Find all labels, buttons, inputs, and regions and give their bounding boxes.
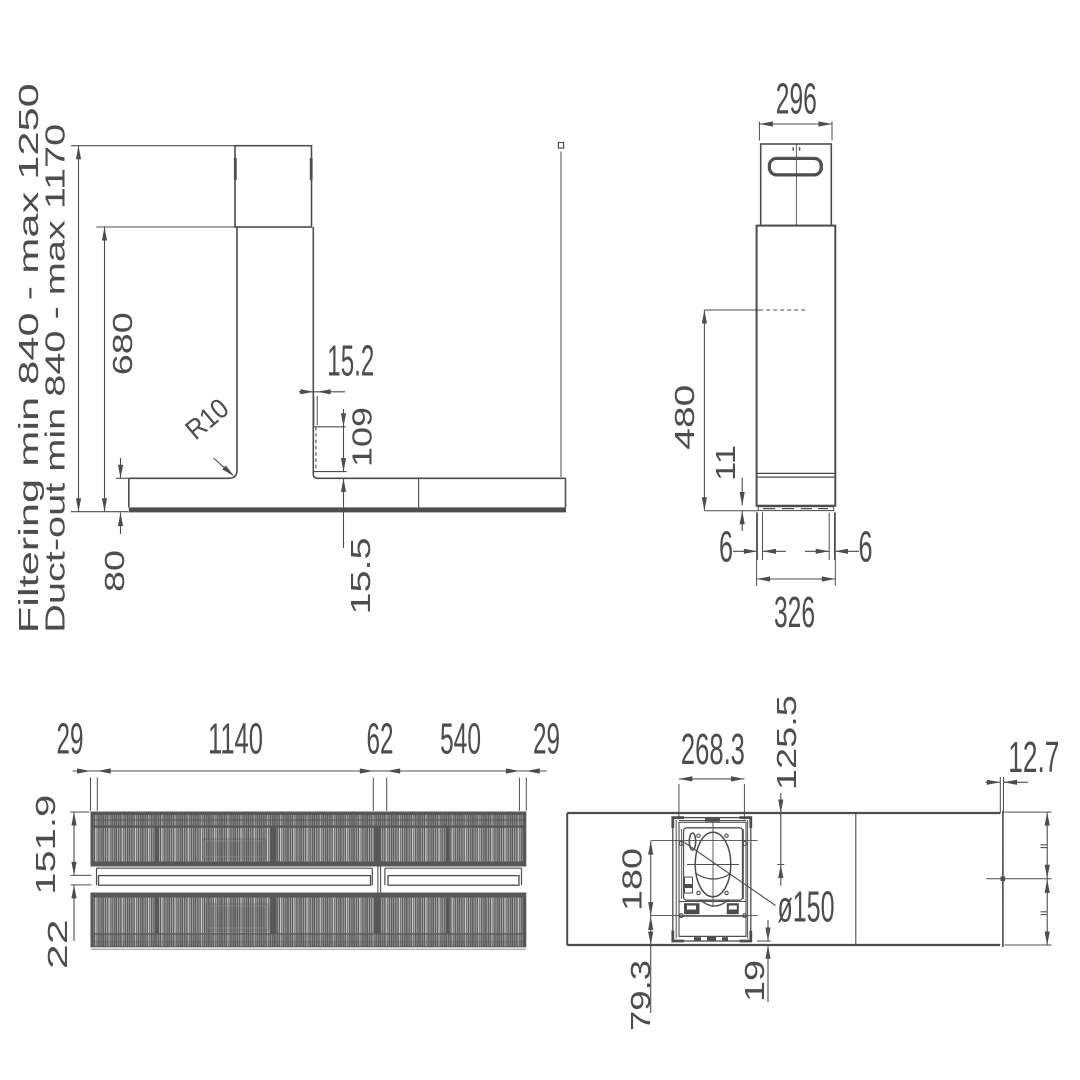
- svg-text:22: 22: [42, 919, 73, 969]
- svg-text:11: 11: [710, 445, 741, 481]
- svg-text:79.3: 79.3: [625, 960, 656, 1031]
- svg-text:ø150: ø150: [778, 883, 835, 932]
- svg-text:296: 296: [776, 74, 817, 123]
- svg-text:6: 6: [719, 523, 733, 572]
- svg-text:Duct-out min 840 - max 1170: Duct-out min 840 - max 1170: [39, 124, 70, 633]
- svg-text:1140: 1140: [208, 715, 263, 764]
- svg-text:80: 80: [99, 550, 130, 592]
- svg-text:326: 326: [774, 588, 815, 637]
- svg-text:6: 6: [859, 523, 873, 572]
- svg-text:19: 19: [739, 960, 770, 1002]
- svg-text:180: 180: [617, 848, 648, 911]
- svg-text:480: 480: [669, 385, 700, 450]
- svg-text:680: 680: [107, 312, 138, 375]
- svg-text:109: 109: [346, 407, 377, 467]
- svg-text:540: 540: [440, 715, 481, 764]
- svg-text:15.2: 15.2: [327, 337, 374, 386]
- svg-text:15.5: 15.5: [345, 538, 376, 615]
- svg-text:151.9: 151.9: [30, 795, 61, 895]
- svg-text:268.3: 268.3: [681, 725, 745, 774]
- svg-text:29: 29: [533, 715, 560, 764]
- svg-text:62: 62: [367, 715, 394, 764]
- svg-text:29: 29: [57, 715, 84, 764]
- svg-text:125.5: 125.5: [771, 695, 802, 790]
- svg-text:12.7: 12.7: [1008, 733, 1059, 782]
